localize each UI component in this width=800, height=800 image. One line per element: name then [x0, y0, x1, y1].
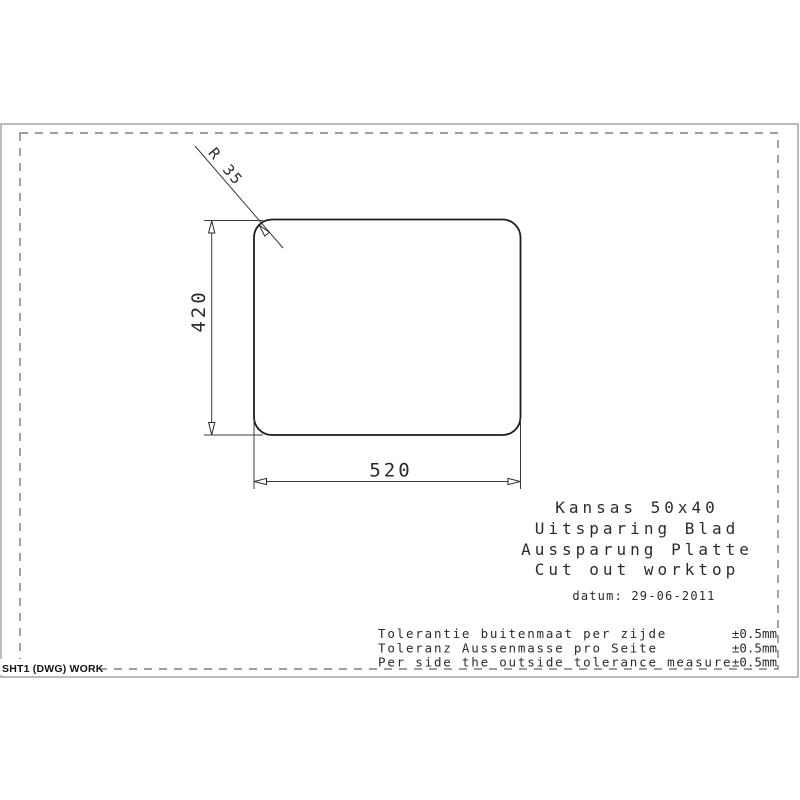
tolerance-row-label: Tolerantie buitenmaat per zijde	[378, 626, 667, 641]
tolerance-row-label: Toleranz Aussenmasse pro Seite	[378, 641, 658, 656]
tolerance-row-value: ±0.5mm	[732, 641, 777, 656]
date-label: datum: 29-06-2011	[572, 589, 715, 603]
arrowhead-down-icon	[209, 423, 215, 435]
drawing-canvas: 420 520 R 35 Kansas 50x40 Uitsparing Bla…	[0, 0, 800, 800]
tolerance-row-label: Per side the outside tolerance measure	[378, 655, 732, 670]
arrowhead-up-icon	[209, 221, 215, 233]
title-line-en: Cut out worktop	[535, 560, 740, 579]
tolerance-row-value: ±0.5mm	[732, 626, 777, 641]
arrowhead-left-icon	[254, 478, 266, 484]
radius-label: R 35	[205, 144, 247, 189]
height-dimension-label: 420	[188, 289, 210, 332]
width-dimension-label: 520	[369, 460, 412, 482]
title-line-de: Aussparung Platte	[521, 540, 753, 559]
sheet-label: SHT1 (DWG) WORK	[2, 663, 104, 675]
title-line-product: Kansas 50x40	[555, 498, 719, 517]
title-line-nl: Uitsparing Blad	[535, 519, 740, 538]
tolerance-row-value: ±0.5mm	[732, 655, 777, 670]
arrowhead-right-icon	[508, 478, 520, 484]
cutout-outline	[254, 220, 521, 436]
technical-drawing-page: 420 520 R 35 Kansas 50x40 Uitsparing Bla…	[0, 0, 800, 800]
